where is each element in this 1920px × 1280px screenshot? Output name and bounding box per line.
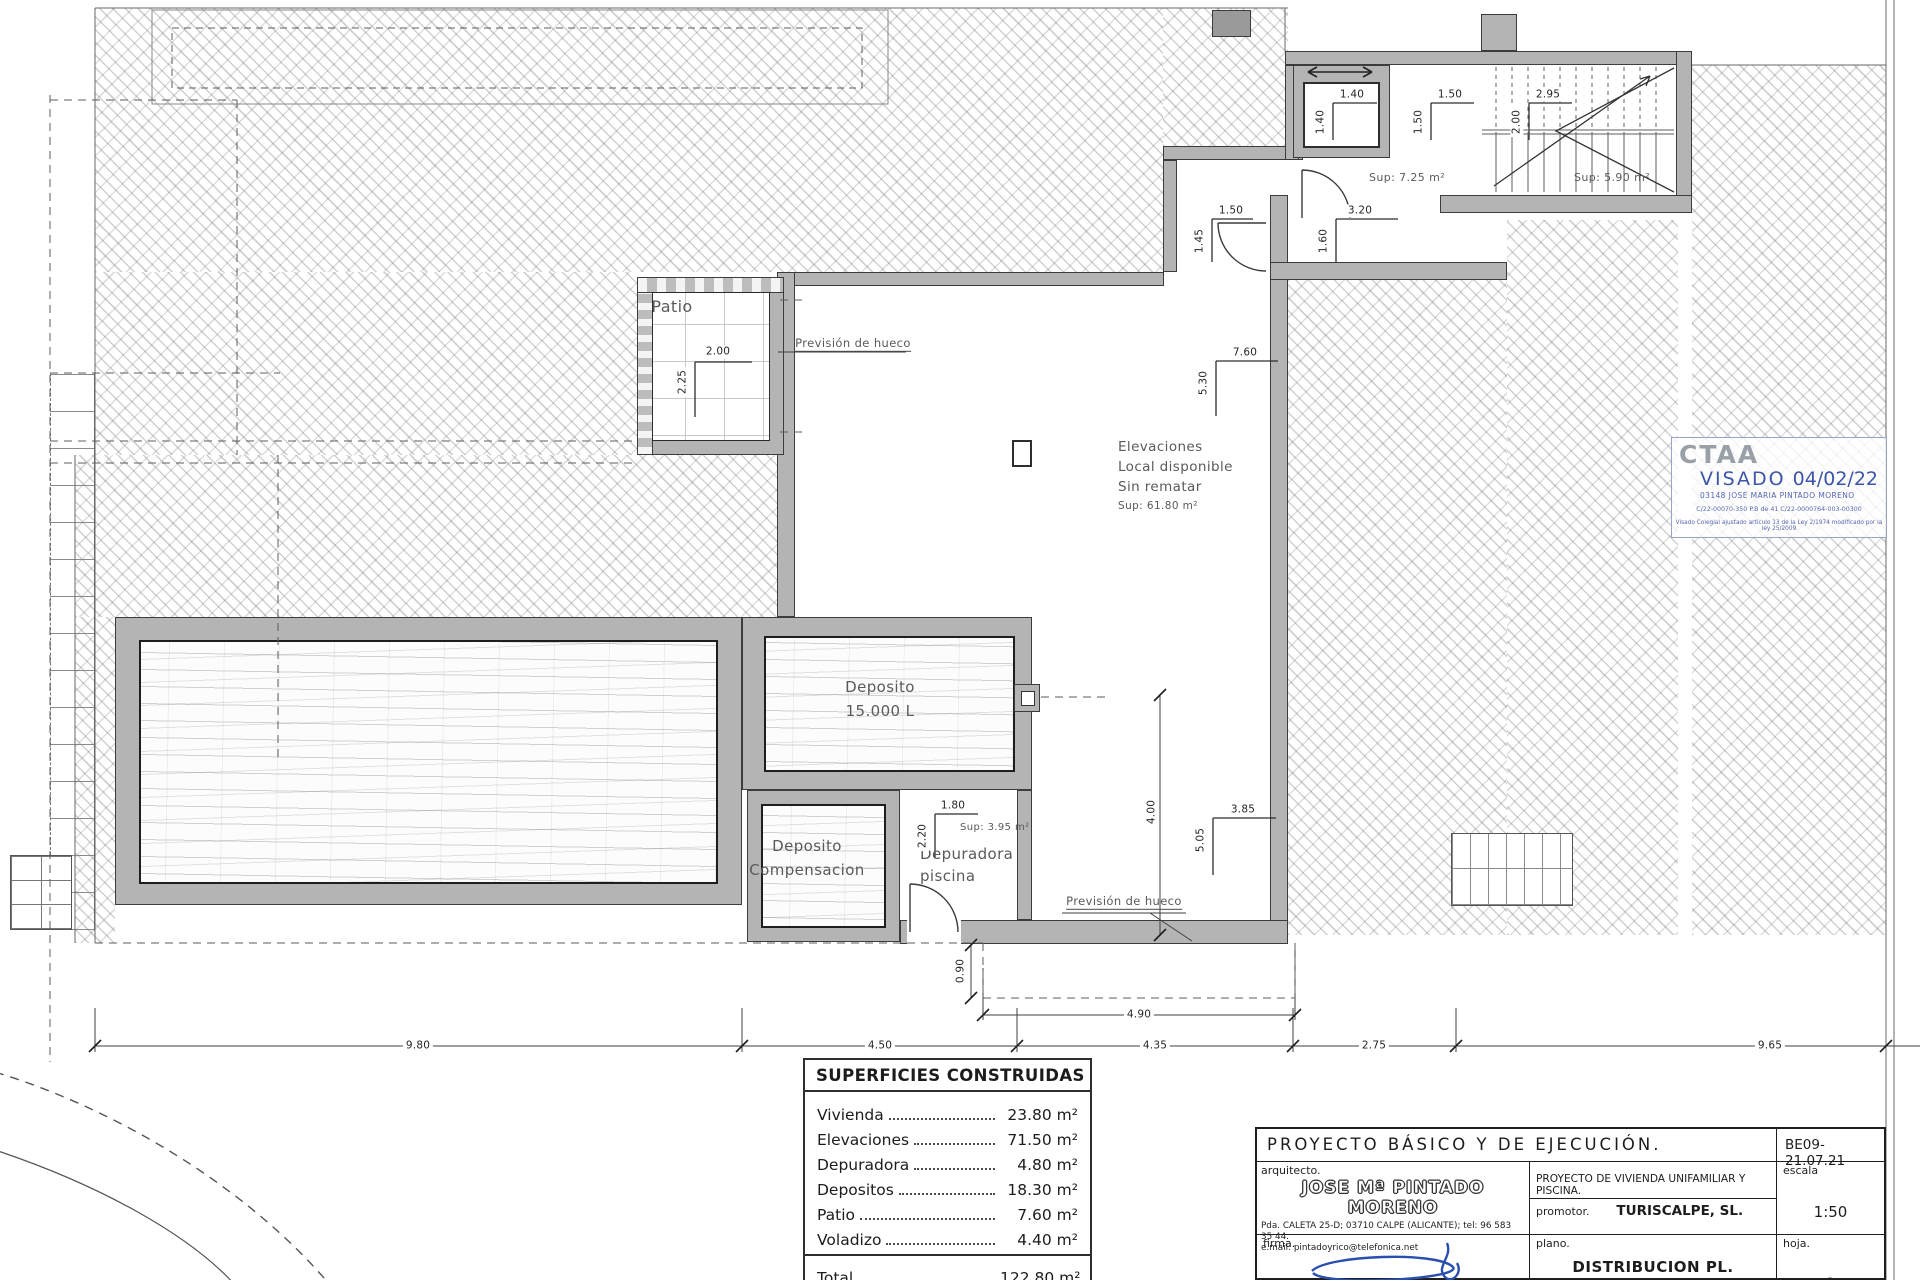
areas-table-row: Depuradora4.80 m² <box>817 1149 1078 1174</box>
dim-2-25-patio: 2.25 <box>676 367 689 397</box>
areas-table-row: Vivienda23.80 m² <box>817 1099 1078 1124</box>
prevision-hueco-bottom-label: Previsión de hueco <box>1066 894 1182 910</box>
dim-2-95-h: 2.95 <box>1533 88 1563 101</box>
areas-table-total-row: Total 122.80 m² <box>805 1254 1090 1280</box>
earth-hatch-left <box>95 272 637 455</box>
dotted-leader <box>899 1193 995 1195</box>
promoter-row: promotor. TURISCALPE, SL. <box>1530 1199 1776 1219</box>
dim-2-00-patio: 2.00 <box>703 345 733 358</box>
stamp-ref-line: C/22-00070-350 P.B de 41 C/22-0000764-00… <box>1672 506 1886 513</box>
dim-1-45-door: 1.45 <box>1193 226 1206 256</box>
patio-label: Patio <box>651 297 692 317</box>
areas-table-row: Elevaciones71.50 m² <box>817 1124 1078 1149</box>
dim-1-40-h: 1.40 <box>1337 88 1367 101</box>
dim-1-80: 1.80 <box>938 799 968 812</box>
stairs-sup-label: Sup: 5.90 m² <box>1574 171 1650 185</box>
depuradora-label: Depuradora piscina <box>920 843 1013 887</box>
dim-1-50-h: 1.50 <box>1435 88 1465 101</box>
earth-hatch-top <box>95 8 1163 272</box>
dim-4-00: 4.00 <box>1145 797 1158 827</box>
area-row-label: Voladizo <box>817 1231 881 1249</box>
stamp-date: 04/02/22 <box>1793 468 1878 490</box>
areas-table-title: SUPERFICIES CONSTRUIDAS <box>805 1060 1090 1092</box>
landing-sup-label: Sup: 7.25 m² <box>1369 171 1445 185</box>
visado-stamp: CTAA VISADO 04/02/22 03148 JOSE MARIA PI… <box>1671 437 1887 538</box>
dim-9-80: 9.80 <box>403 1039 433 1052</box>
dotted-leader <box>886 1243 995 1245</box>
dim-9-65: 9.65 <box>1755 1039 1785 1052</box>
area-row-value: 7.60 m² <box>1000 1206 1078 1224</box>
earth-hatch-mid-left <box>75 455 777 617</box>
area-row-value: 4.80 m² <box>1000 1156 1078 1174</box>
areas-table: SUPERFICIES CONSTRUIDAS Vivienda23.80 m²… <box>803 1058 1092 1280</box>
wall-void-bottom <box>1270 262 1507 280</box>
dotted-leader <box>914 1168 995 1170</box>
plan-label: plano. <box>1536 1237 1770 1250</box>
dim-0-90: 0.90 <box>954 956 967 986</box>
dim-2-20: 2.20 <box>916 821 929 851</box>
wall-unit-right <box>1676 51 1692 213</box>
wall-corridor-left <box>1163 160 1177 272</box>
project-heading: PROYECTO BÁSICO Y DE EJECUCIÓN. <box>1257 1129 1777 1162</box>
scale-value: 1:50 <box>1783 1203 1878 1221</box>
local-sup-label: Sup: 61.80 m² <box>1118 500 1198 513</box>
area-row-value: 18.30 m² <box>1000 1181 1078 1199</box>
column-symbol <box>1012 440 1032 467</box>
left-grid-box <box>10 855 72 930</box>
prevision-hueco-top-label: Previsión de hueco <box>795 336 911 352</box>
floor-plan-sheet: PatioPrevisión de huecoElevaciones Local… <box>0 0 1920 1280</box>
wall-unit-top <box>1285 51 1692 65</box>
dotted-leader <box>889 1118 995 1120</box>
dim-1-50-v: 1.50 <box>1412 107 1425 137</box>
patio-stone-wall-top <box>637 277 784 293</box>
area-row-label: Vivienda <box>817 1106 884 1124</box>
dim-5-05: 5.05 <box>1194 825 1207 855</box>
architect-label: arquitecto. <box>1261 1164 1525 1177</box>
architect-name: JOSE Mª PINTADO MORENO <box>1261 1178 1525 1218</box>
promoter-name: TURISCALPE, SL. <box>1590 1203 1771 1219</box>
deposito-15000-label: Deposito 15.000 L <box>845 675 915 723</box>
dim-4-50: 4.50 <box>865 1039 895 1052</box>
pipe-connector-core <box>1021 691 1035 706</box>
plan-title-cell: plano. DISTRIBUCION PL. SEMISOTANO <box>1530 1235 1777 1278</box>
stamp-legal-line: Visado Colegial ajustado artículo 13 de … <box>1672 520 1886 532</box>
signature-cell: firma. <box>1257 1235 1530 1278</box>
area-row-label: Depositos <box>817 1181 894 1199</box>
exterior-stair-strip <box>50 373 95 930</box>
area-row-value: 4.40 m² <box>1000 1231 1078 1249</box>
dim-7-60: 7.60 <box>1230 346 1260 359</box>
sheet-number: 2 <box>1783 1274 1878 1280</box>
deposito-compensacion-label: Deposito Compensacion <box>749 834 864 882</box>
sheet-cell: hoja. 2 <box>1777 1235 1884 1278</box>
dim-3-20-void: 3.20 <box>1345 204 1375 217</box>
dotted-leader <box>860 1218 995 1220</box>
dim-3-85: 3.85 <box>1228 803 1258 816</box>
reference-code: BE09-21.07.21 <box>1777 1129 1884 1162</box>
dim-4-90: 4.90 <box>1124 1008 1154 1021</box>
sheet-label: hoja. <box>1783 1237 1878 1250</box>
roof-box-b <box>1481 14 1517 51</box>
total-value: 122.80 m² <box>1000 1269 1078 1280</box>
architect-cell: arquitecto. JOSE Mª PINTADO MORENO Pda. … <box>1257 1162 1530 1235</box>
area-row-value: 71.50 m² <box>1000 1131 1078 1149</box>
areas-table-row: Patio7.60 m² <box>817 1199 1078 1224</box>
dim-2-75: 2.75 <box>1359 1039 1389 1052</box>
roof-box-a <box>1212 10 1251 37</box>
area-row-label: Depuradora <box>817 1156 909 1174</box>
plan-name: DISTRIBUCION PL. SEMISOTANO <box>1536 1258 1770 1280</box>
areas-table-row: Depositos18.30 m² <box>817 1174 1078 1199</box>
stamp-visado-label: VISADO <box>1700 468 1786 490</box>
depuradora-sup-label: Sup: 3.95 m² <box>960 822 1030 835</box>
area-row-label: Elevaciones <box>817 1131 909 1149</box>
wall-depuradora-right <box>1017 790 1032 920</box>
project-description: PROYECTO DE VIVIENDA UNIFAMILIAR Y PISCI… <box>1530 1162 1776 1199</box>
areas-table-rows: Vivienda23.80 m²Elevaciones71.50 m²Depur… <box>805 1092 1090 1249</box>
areas-table-row: Voladizo4.40 m² <box>817 1224 1078 1249</box>
stamp-holder: 03148 JOSE MARIA PINTADO MORENO <box>1700 491 1855 500</box>
total-label: Total <box>817 1269 853 1280</box>
promoter-label: promotor. <box>1536 1205 1590 1218</box>
wall-corridor-top <box>1163 146 1303 160</box>
pool-water <box>139 640 718 884</box>
dim-1-50-door: 1.50 <box>1216 204 1246 217</box>
dim-2-00-v: 2.00 <box>1510 107 1523 137</box>
wall-room-right <box>1270 195 1288 935</box>
area-row-label: Patio <box>817 1206 855 1224</box>
scale-cell: escala 1:50 <box>1777 1162 1884 1235</box>
earth-hatch-right-b <box>1507 220 1678 935</box>
dim-4-35: 4.35 <box>1140 1039 1170 1052</box>
title-block: PROYECTO BÁSICO Y DE EJECUCIÓN. BE09-21.… <box>1255 1127 1886 1280</box>
signature-icon <box>1287 1241 1517 1280</box>
dim-1-40-v: 1.40 <box>1314 107 1327 137</box>
dim-1-60-void: 1.60 <box>1317 226 1330 256</box>
dim-5-30: 5.30 <box>1197 368 1210 398</box>
depuradora-door-gap <box>907 920 961 944</box>
drain-grate <box>1451 833 1573 906</box>
area-row-value: 23.80 m² <box>1000 1106 1078 1124</box>
local-disponible-label: Elevaciones Local disponible Sin rematar <box>1118 437 1233 497</box>
wall-room-top <box>784 272 1164 286</box>
wall-unit-bottom <box>1440 195 1692 213</box>
project-cell: PROYECTO DE VIVIENDA UNIFAMILIAR Y PISCI… <box>1530 1162 1777 1235</box>
dotted-leader <box>914 1143 995 1145</box>
scale-label: escala <box>1783 1164 1878 1177</box>
stamp-org-logo: CTAA <box>1679 440 1759 469</box>
